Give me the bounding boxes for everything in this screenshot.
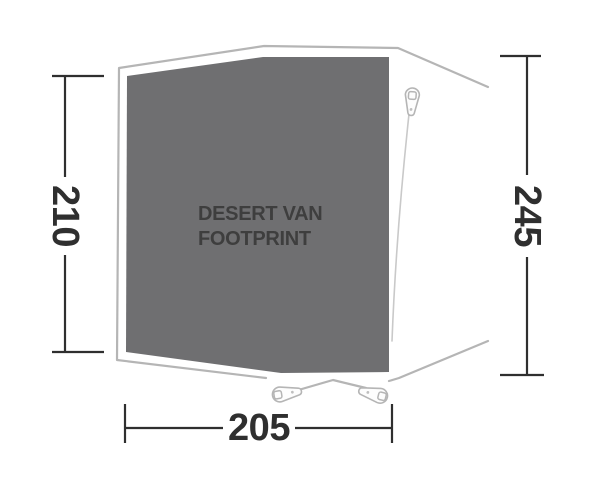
dimension-bottom-value: 205 <box>228 407 290 449</box>
footprint-diagram: 210 245 205 DESERT VAN FOOTPRINT <box>0 0 600 481</box>
tent-peg-icon <box>404 88 420 116</box>
bottom-peg-guyline <box>295 380 366 391</box>
dimension-right-value: 245 <box>506 185 548 247</box>
dimension-right: 245 <box>500 56 548 375</box>
dimension-left-value: 210 <box>44 185 86 247</box>
product-label-line2: FOOTPRINT <box>198 228 311 250</box>
product-label-line1: DESERT VAN <box>198 203 322 225</box>
top-peg-guyline <box>392 114 409 341</box>
peg-body <box>271 384 302 403</box>
groundsheet-outline-right <box>389 341 488 381</box>
diagram-canvas: 210 245 205 DESERT VAN FOOTPRINT <box>0 0 600 481</box>
dimension-left: 210 <box>44 76 104 352</box>
dimension-bottom: 205 <box>125 404 392 449</box>
tent-peg-icon <box>271 384 302 403</box>
